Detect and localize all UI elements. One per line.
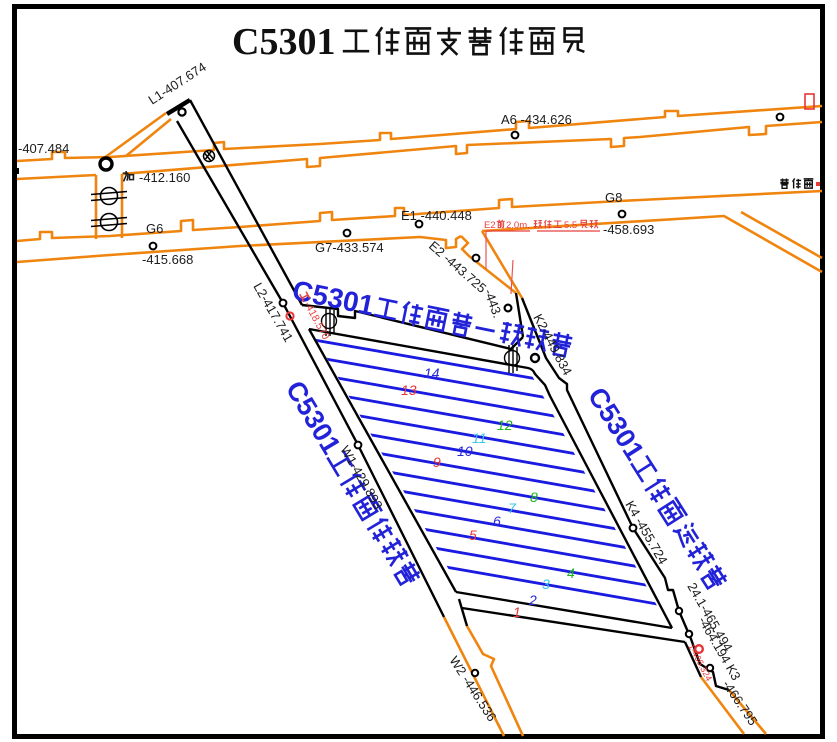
svg-text:11: 11	[472, 430, 487, 446]
svg-text:-412.160: -412.160	[139, 170, 190, 185]
svg-text:12: 12	[497, 417, 513, 433]
svg-text:13: 13	[401, 382, 417, 398]
svg-text:2: 2	[528, 592, 537, 608]
svg-text:5.5: 5.5	[564, 220, 577, 231]
svg-text:-458.693: -458.693	[603, 222, 654, 237]
svg-text:C5301: C5301	[232, 21, 335, 63]
svg-text:14: 14	[424, 365, 440, 381]
svg-text:G7-433.574: G7-433.574	[315, 240, 384, 255]
svg-text:1: 1	[513, 604, 521, 620]
svg-text:E2: E2	[484, 220, 496, 231]
svg-text:-415.668: -415.668	[142, 252, 193, 267]
svg-text:10: 10	[457, 443, 473, 459]
svg-text:3: 3	[542, 576, 550, 592]
svg-text:7: 7	[508, 500, 517, 516]
svg-text:6: 6	[493, 513, 501, 529]
svg-text:A6 -434.626: A6 -434.626	[501, 112, 572, 127]
svg-text:G8: G8	[605, 190, 622, 205]
svg-text:4: 4	[567, 565, 575, 581]
svg-text:G6: G6	[146, 221, 163, 236]
svg-text:E1 -440.448: E1 -440.448	[401, 208, 472, 223]
svg-text:8: 8	[530, 489, 538, 505]
svg-text:-407.484: -407.484	[18, 141, 69, 156]
svg-text:5: 5	[469, 527, 477, 543]
svg-text:2.0m,: 2.0m,	[506, 220, 530, 231]
svg-text:9: 9	[433, 454, 441, 470]
